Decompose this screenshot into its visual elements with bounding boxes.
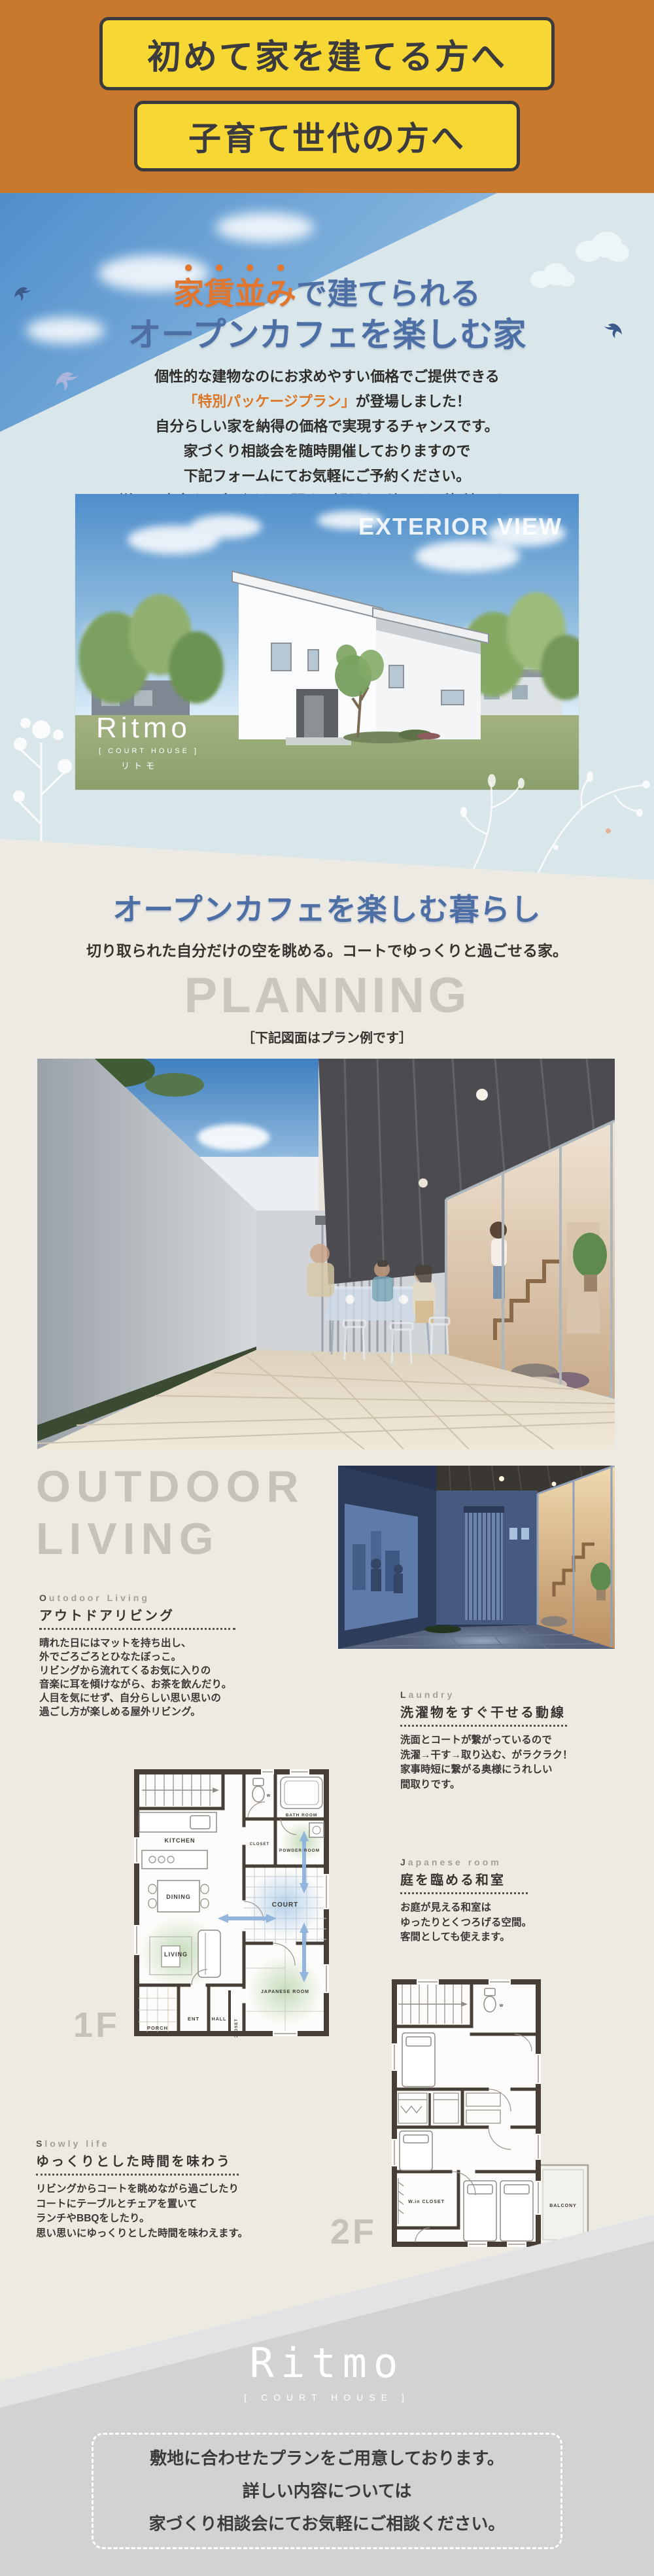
japanese-room-block: Japanese room 庭を臨める和室 お庭が見える和室は ゆったりとくつろ… (400, 1857, 616, 1945)
hero-paragraph-line: 「特別パッケージプラン」が登場しました！ (0, 389, 654, 414)
ritmo-logo-kana: リトモ (121, 761, 158, 771)
paragraph-line: 晴れた日にはマットを持ち出し、 (39, 1636, 320, 1650)
slowly-life-label: Slowly life (36, 2138, 324, 2149)
badge-child-raising-label: 子育て世代の方へ (188, 113, 466, 160)
outdoor-living-display: OUTDOOR LIVING (36, 1460, 305, 1565)
paragraph-line: 洗面とコートが繋がっているので (400, 1733, 616, 1748)
floorplan-1f: KITCHEN DINING LIVING PORCH ENT HALL CLO… (133, 1768, 330, 2038)
paragraph-line: 音楽に耳を傾けながら、お茶を飲んだり。 (39, 1678, 320, 1691)
exterior-view-caption: EXTERIOR VIEW (358, 513, 562, 540)
hero-title-line1: 家賃並みで建てられる (0, 258, 654, 311)
paragraph-line: 洗濯→干す→取り込む、がラクラク！ (400, 1748, 616, 1763)
hero-paragraph-line: 自分らしい家を納得の価格で実現するチャンスです。 (0, 414, 654, 439)
footer-consultation-box: 敷地に合わせたプランをご用意しております。 詳しい内容については 家づくり相談会… (92, 2433, 562, 2549)
room-label-closet: CLOSET (250, 1843, 269, 1846)
outdoor-living-heading: アウトドアリビング (39, 1605, 320, 1624)
outdoor-display-line1: OUTDOOR (36, 1460, 305, 1513)
header-banner: 初めて家を建てる方へ 子育て世代の方へ (0, 0, 654, 193)
floor-label-2f: 2F (330, 2212, 377, 2252)
hero-title: 家賃並みで建てられる オープンカフェを楽しむ家 (0, 258, 654, 355)
hero-paragraph-line: 個性的な建物なのにお求めやすい価格でご提供できる (0, 364, 654, 389)
hero-paragraph-rest: が登場しました！ (356, 393, 471, 410)
hero-title-rest: で建てられる (296, 276, 481, 311)
laundry-block: Laundry 洗濯物をすぐ干せる動線 洗面とコートが繋がっているので 洗濯→干… (400, 1689, 616, 1792)
slowly-life-heading: ゆっくりとした時間を味わう (36, 2151, 324, 2170)
room-label-balcony: BALCONY (549, 2204, 577, 2208)
exterior-view-image: EXTERIOR VIEW Ritmo [ COURT HOUSE ] リトモ (75, 494, 579, 790)
badge-first-home-label: 初めて家を建てる方へ (147, 29, 507, 79)
room-label-dining: DINING (166, 1894, 191, 1900)
laundry-label: Laundry (400, 1689, 616, 1700)
hero-paragraph-line: 下記フォームにてお気軽にご予約ください。 (0, 464, 654, 489)
room-label-wc2: W (500, 2004, 504, 2008)
paragraph-line: 過ごし方が楽しめる屋外リビング。 (39, 1705, 320, 1719)
paragraph-line: リビングから流れてくるお気に入りの (39, 1664, 320, 1678)
paragraph-line: お庭が見える和室は (400, 1901, 616, 1916)
hero-section: 家賃並みで建てられる オープンカフェを楽しむ家 個性的な建物なのにお求めやすい価… (0, 193, 654, 880)
paragraph-line: コートにテーブルとチェアを置いて (36, 2197, 324, 2212)
ritmo-logo-text: Ritmo (96, 712, 191, 744)
floorplan-2f: W.in CLOSET BALCONY W (390, 1978, 594, 2248)
courtyard-night-photo (338, 1466, 615, 1649)
laundry-heading: 洗濯物をすぐ干せる動線 (400, 1702, 616, 1721)
room-label-court: COURT (272, 1901, 299, 1909)
outdoor-living-paragraph: 晴れた日にはマットを持ち出し、 外でごろごろとひなたぼっこ。 リビングから流れて… (39, 1636, 320, 1719)
planning-heading: PLANNING (0, 967, 654, 1024)
badge-child-raising: 子育て世代の方へ (134, 101, 520, 171)
dotted-divider (400, 1892, 528, 1894)
dotted-divider (39, 1628, 235, 1630)
flyer-page: 初めて家を建てる方へ 子育て世代の方へ (0, 0, 654, 2576)
room-label-wic: W.in CLOSET (408, 2200, 445, 2204)
paragraph-line: 思い思いにゆっくりとした時間を味わえます。 (36, 2227, 324, 2242)
footer-line: 家づくり相談会にてお気軽にご相談ください。 (149, 2507, 506, 2540)
outdoor-display-line2: LIVING (36, 1513, 305, 1565)
hero-paragraph-line: 家づくり相談会を随時開催しておりますので (0, 439, 654, 464)
outdoor-living-label: Outodoor Living (39, 1593, 320, 1603)
japanese-room-paragraph: お庭が見える和室は ゆったりとくつろげる空間。 客間としても使えます。 (400, 1901, 616, 1945)
japanese-room-label: Japanese room (400, 1857, 616, 1867)
botanical-decoration-icon (458, 769, 654, 880)
room-label-porch: PORCH (147, 2025, 168, 2031)
room-label-hall: HALL (212, 2017, 227, 2022)
room-label-kitchen: KITCHEN (165, 1837, 196, 1844)
paragraph-line: ランチやBBQをしたり。 (36, 2212, 324, 2227)
footer-line: 詳しい内容については (243, 2475, 412, 2507)
outdoor-living-block: Outodoor Living アウトドアリビング 晴れた日にはマットを持ち出し… (39, 1593, 320, 1719)
room-label-powder: POWDER ROOM (279, 1848, 320, 1853)
hero-paragraph-accent: 「特別パッケージプラン」 (183, 393, 356, 410)
footer-ritmo-logo: Ritmo (0, 2339, 654, 2387)
lifestyle-subtitle: 切り取られた自分だけの空を眺める。コートでゆっくりと過ごせる家。 (0, 938, 654, 961)
room-label-living: LIVING (164, 1951, 188, 1958)
ritmo-logo-sub: [ COURT HOUSE ] (99, 747, 199, 755)
footer-logo: Ritmo [ COURT HOUSE ] (0, 2339, 654, 2403)
paragraph-line: 家事時短に繋がる奥様にうれしい (400, 1763, 616, 1778)
laundry-paragraph: 洗面とコートが繋がっているので 洗濯→干す→取り込む、がラクラク！ 家事時短に繋… (400, 1733, 616, 1792)
footer-ritmo-sub: [ COURT HOUSE ] (0, 2392, 654, 2403)
lifestyle-title: オープンカフェを楽しむ暮らし (0, 886, 654, 929)
slowly-life-block: Slowly life ゆっくりとした時間を味わう リビングからコートを眺めなが… (36, 2138, 324, 2241)
paragraph-line: リビングからコートを眺めながら過ごしたり (36, 2182, 324, 2197)
hero-title-line2: オープンカフェを楽しむ家 (0, 315, 654, 355)
cloud-photo-3 (216, 213, 314, 242)
courtyard-day-photo (37, 1059, 615, 1449)
japanese-room-heading: 庭を臨める和室 (400, 1869, 616, 1888)
dotted-divider (36, 2174, 239, 2176)
footer-line: 敷地に合わせたプランをご用意しております。 (150, 2442, 504, 2475)
paragraph-line: ゆったりとくつろげる空間。 (400, 1916, 616, 1931)
hero-paragraph: 個性的な建物なのにお求めやすい価格でご提供できる 「特別パッケージプラン」が登場… (0, 364, 654, 514)
paragraph-line: 客間としても使えます。 (400, 1930, 616, 1945)
hero-title-accent: 家賃並み (173, 276, 296, 311)
room-label-wc: W (267, 1794, 271, 1798)
slowly-life-paragraph: リビングからコートを眺めながら過ごしたり コートにテーブルとチェアを置いて ラン… (36, 2182, 324, 2241)
paragraph-line: 外でごろごろとひなたぼっこ。 (39, 1650, 320, 1664)
room-label-japanese: JAPANESE ROOM (261, 1990, 309, 1994)
paragraph-line: 人目を気にせず、自分らしい思い思いの (39, 1691, 320, 1705)
room-label-bath: BATH ROOM (286, 1813, 318, 1818)
floor-label-1f: 1F (73, 2005, 120, 2045)
planning-note: ［下記図面はプラン例です］ (0, 1027, 654, 1046)
room-label-closet-hall: CLOSET (235, 2019, 239, 2038)
room-label-ent: ENT (188, 2016, 199, 2022)
dotted-divider (400, 1725, 567, 1727)
badge-first-home: 初めて家を建てる方へ (99, 17, 555, 90)
paragraph-line: 間取りです。 (400, 1778, 616, 1793)
